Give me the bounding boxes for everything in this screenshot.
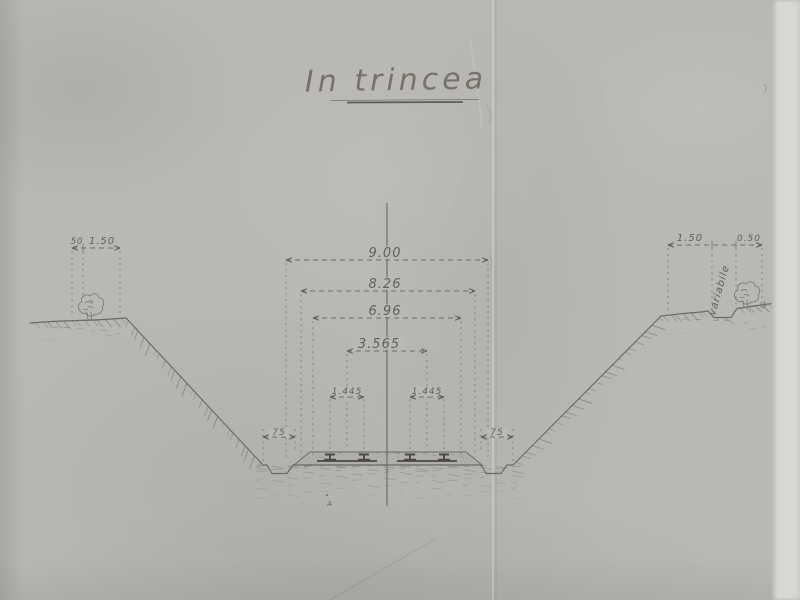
dim-label-9-00: 9.00 [369, 246, 402, 261]
dim-label-left-150: 1.50 [89, 236, 115, 247]
left-bush [78, 294, 103, 319]
left-cutting-slope [126, 318, 263, 465]
right-cutting-slope [513, 316, 661, 465]
dim-label-right-050: 0.50 [737, 234, 761, 244]
title-underline [331, 100, 479, 101]
right-bush [734, 282, 765, 308]
ballast-outline [294, 452, 482, 465]
right-bush-trunk [743, 300, 748, 307]
dim-label-gauge-right: 1.445 [412, 387, 443, 397]
left-berm-dimensions: 50 1.50 [71, 236, 120, 252]
scanned-drawing-page: In trincea [0, 0, 800, 600]
dimension-shoulder-right: 75 [481, 428, 513, 439]
ballast-and-tracks [294, 452, 482, 465]
extension-lines [72, 248, 762, 463]
ground-annotation: A [326, 494, 333, 508]
dim-label-right-150: 1.50 [677, 233, 703, 244]
dim-label-gauge-left: 1.445 [332, 387, 363, 397]
dim-label-shoulder-right: 75 [490, 428, 503, 438]
left-berm-specks [40, 327, 119, 341]
dimension-9-00: 9.00 [286, 246, 488, 262]
left-bush-trunk [87, 312, 92, 319]
edge-marks [763, 84, 766, 307]
dimension-8-26: 8.26 [301, 277, 475, 293]
right-berm-specks [665, 319, 766, 334]
dimension-shoulder-left: 75 [263, 428, 295, 439]
title-text: In trincea [305, 61, 488, 99]
ground-mark-letter: A [326, 500, 333, 508]
left-slope-hatching [126, 321, 260, 469]
ground-dot [326, 494, 328, 496]
right-berm-surface-edge [737, 304, 771, 309]
cross-section-drawing: In trincea [0, 0, 800, 600]
dim-label-left-050: 50 [71, 237, 84, 247]
dim-label-shoulder-left: 75 [272, 428, 285, 438]
right-slope-hatching [516, 319, 665, 465]
dim-label-8-26: 8.26 [369, 277, 402, 292]
page-edge-strip [772, 0, 800, 600]
dimension-3-565: 3.565 [347, 337, 427, 353]
dim-label-variabile: variabile [707, 264, 732, 317]
dim-label-3-565: 3.565 [358, 337, 400, 352]
drawing-title: In trincea [305, 61, 488, 102]
dimension-6-96: 6.96 [313, 304, 461, 320]
dim-label-6-96: 6.96 [369, 304, 402, 319]
terrain-profile [30, 304, 771, 474]
title-underline-heavy [347, 102, 463, 103]
